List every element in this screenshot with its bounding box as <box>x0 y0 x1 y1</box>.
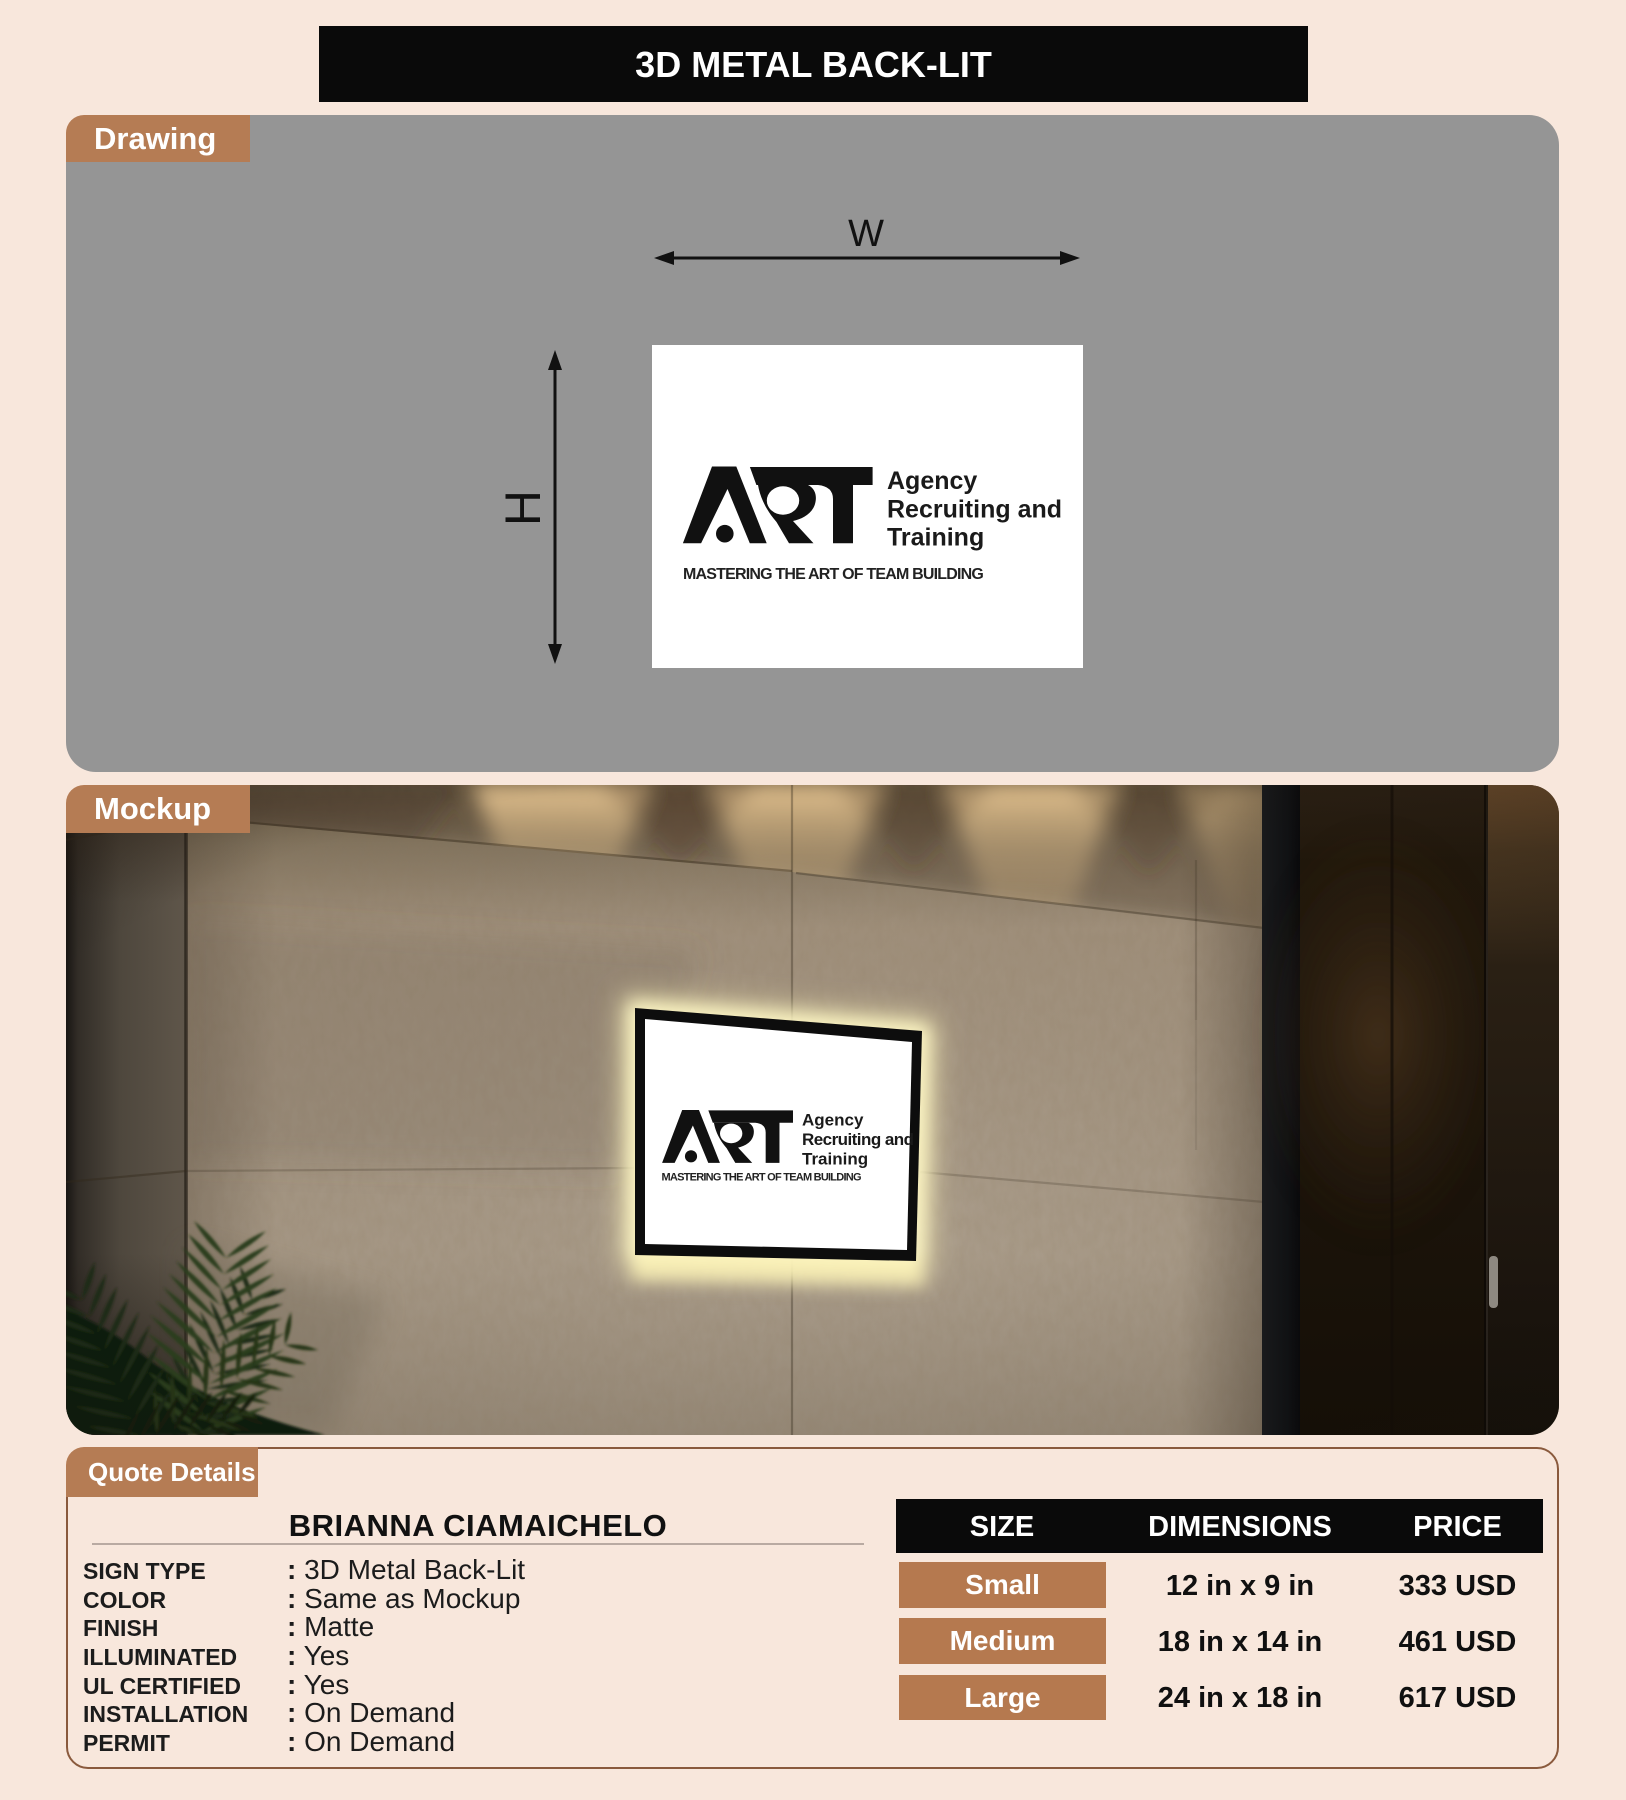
svg-text:W: W <box>848 213 884 255</box>
svg-text:H: H <box>495 490 551 526</box>
svg-text:MASTERING THE ART OF TEAM BUIL: MASTERING THE ART OF TEAM BUILDING <box>683 566 984 583</box>
svg-text:Recruiting and: Recruiting and <box>887 496 1062 524</box>
svg-text:Agency: Agency <box>887 467 977 495</box>
svg-text:Training: Training <box>887 524 984 552</box>
